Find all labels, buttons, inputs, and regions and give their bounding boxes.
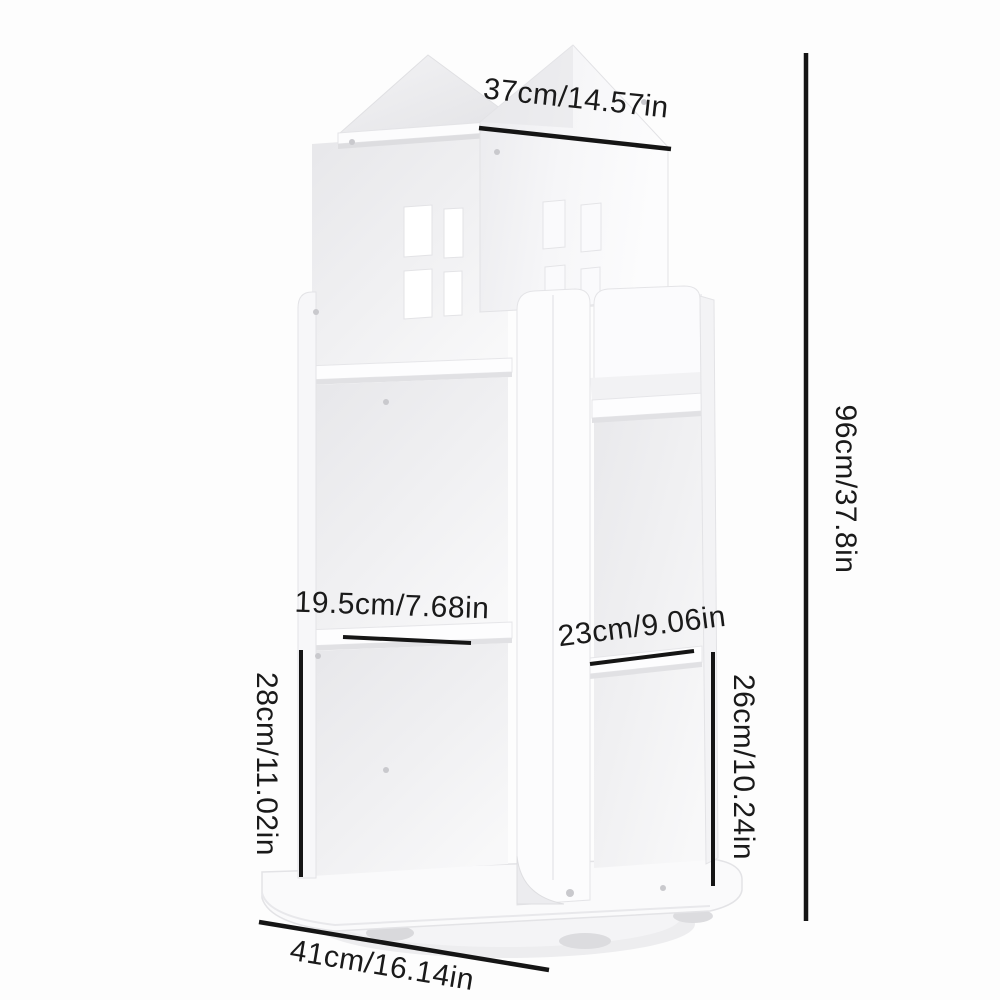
screw-dot <box>494 149 500 155</box>
screw-dot <box>315 653 321 659</box>
screw-dot <box>313 309 319 315</box>
window-pane <box>404 269 432 319</box>
screw-dot <box>383 767 389 773</box>
dimension-label-left-compartment: 28cm/11.02in <box>249 672 283 856</box>
screw-dot <box>349 139 355 145</box>
screw-dot <box>383 399 389 405</box>
window-pane <box>444 271 462 316</box>
right-compartments <box>517 286 718 905</box>
window-pane <box>404 205 432 257</box>
screw-dot <box>660 885 666 891</box>
dimension-label-upper-left-shelf: 19.5cm/7.68in <box>294 586 490 627</box>
dimension-diagram: 37cm/14.57in 96cm/37.8in 19.5cm/7.68in 2… <box>0 0 1000 1000</box>
dimension-label-overall-height: 96cm/37.8in <box>828 405 862 574</box>
screw-dot <box>566 889 574 897</box>
window-pane <box>581 203 601 252</box>
lower-compartment <box>312 643 508 876</box>
window-pane <box>543 200 565 249</box>
dimension-label-right-compartment: 26cm/10.24in <box>726 674 760 860</box>
window-pane <box>444 208 463 258</box>
right-divider-wall <box>594 286 701 386</box>
foot <box>559 933 611 949</box>
